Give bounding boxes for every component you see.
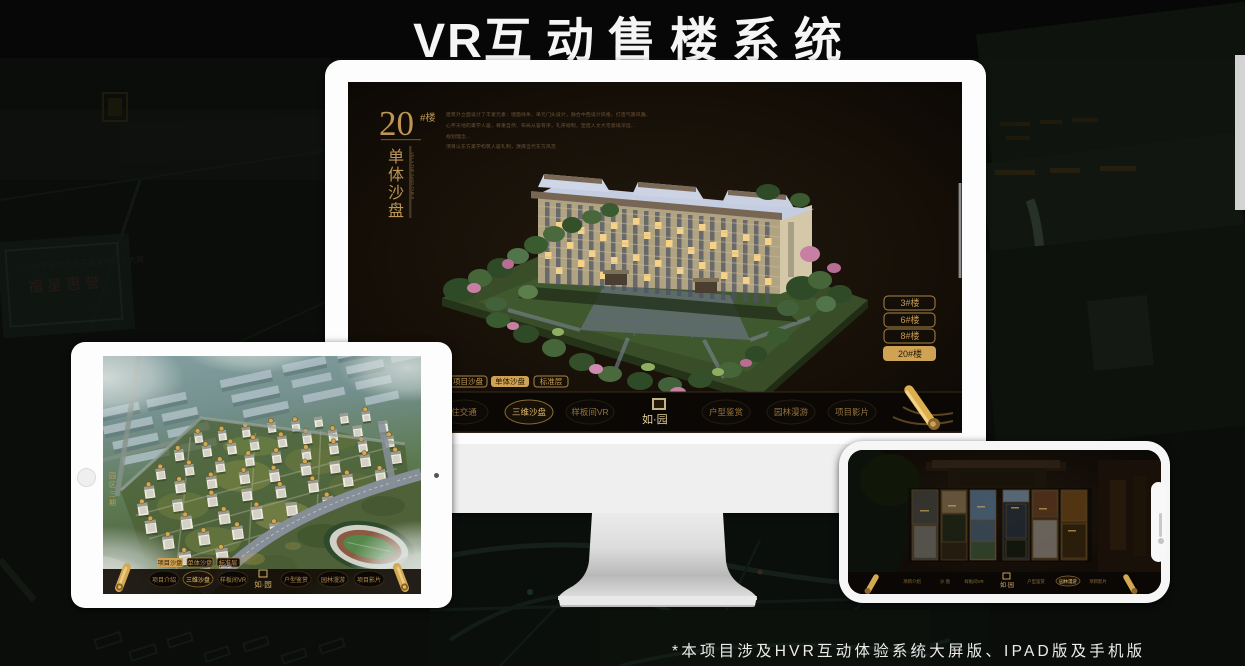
svg-text:户型鉴赏: 户型鉴赏 xyxy=(284,576,308,584)
svg-text:#楼: #楼 xyxy=(420,111,436,124)
svg-text:园林漫游: 园林漫游 xyxy=(321,576,345,584)
svg-text:样板间VR: 样板间VR xyxy=(571,407,608,417)
svg-text:体: 体 xyxy=(388,166,404,184)
svg-text:样板间VR: 样板间VR xyxy=(220,576,247,584)
svg-text:园林漫游: 园林漫游 xyxy=(774,407,809,417)
svg-text:如·园: 如·园 xyxy=(254,579,272,589)
svg-text:园: 园 xyxy=(109,472,116,480)
svg-text:8#楼: 8#楼 xyxy=(900,330,919,341)
svg-text:沙: 沙 xyxy=(388,185,404,202)
svg-text:单体沙盘: 单体沙盘 xyxy=(495,376,525,386)
svg-text:三: 三 xyxy=(109,490,116,498)
svg-text:项目介绍: 项目介绍 xyxy=(903,578,921,585)
svg-text:20: 20 xyxy=(379,104,414,143)
svg-text:户型鉴赏: 户型鉴赏 xyxy=(1027,578,1045,585)
svg-text:6#楼: 6#楼 xyxy=(900,314,919,325)
svg-text:园林漫游: 园林漫游 xyxy=(1059,578,1077,585)
svg-text:盘: 盘 xyxy=(388,201,404,220)
svg-text:3#楼: 3#楼 xyxy=(900,297,919,308)
svg-text:项目沙盘: 项目沙盘 xyxy=(158,559,183,567)
svg-text:项目影片: 项目影片 xyxy=(1089,578,1107,585)
svg-text:项目影片: 项目影片 xyxy=(835,407,869,417)
svg-text:区: 区 xyxy=(109,481,116,489)
svg-text:沙 盘: 沙 盘 xyxy=(940,578,951,584)
svg-text:规划理念...: 规划理念... xyxy=(446,133,471,140)
svg-text:三维沙盘: 三维沙盘 xyxy=(186,576,210,584)
svg-text:如·园: 如·园 xyxy=(1000,581,1014,589)
svg-text:户型鉴赏: 户型鉴赏 xyxy=(709,407,743,417)
svg-text:项目以东方美学构筑人居礼制，演绎当代东方风范: 项目以东方美学构筑人居礼制，演绎当代东方风范 xyxy=(446,143,556,150)
svg-text:标准层: 标准层 xyxy=(540,376,563,386)
svg-text:期: 期 xyxy=(109,499,116,507)
svg-text:20#楼: 20#楼 xyxy=(898,348,922,359)
svg-text:项目影片: 项目影片 xyxy=(357,576,381,584)
svg-text:单: 单 xyxy=(388,148,404,166)
svg-text:TB805: TB805 xyxy=(218,564,232,569)
svg-text:项目沙盘: 项目沙盘 xyxy=(453,376,483,386)
svg-text:住交通: 住交通 xyxy=(451,407,477,417)
svg-text:心怀天地的美学人居，尊重自然、布局从容有序，礼序规制，塑造人: 心怀天地的美学人居，尊重自然、布局从容有序，礼序规制，塑造人文大宅意境深远... xyxy=(446,122,636,129)
svg-text:三维沙盘: 三维沙盘 xyxy=(512,407,547,417)
svg-text:项目介绍: 项目介绍 xyxy=(152,576,176,584)
svg-text:如·园: 如·园 xyxy=(642,412,668,426)
svg-text:样板间VR: 样板间VR xyxy=(964,578,983,585)
svg-text:建筑外立面设计了丰富元素：墙面线条、单元门头设计，融合中西设: 建筑外立面设计了丰富元素：墙面线条、单元门头设计，融合中西设计风格，打造气质风雅… xyxy=(446,111,651,118)
svg-text:单体沙盘: 单体沙盘 xyxy=(188,559,213,567)
